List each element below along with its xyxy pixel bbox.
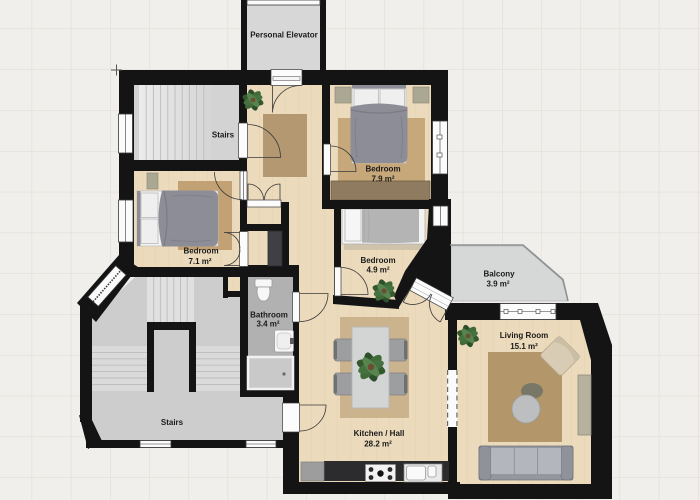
svg-text:3.9 m²: 3.9 m²: [486, 280, 509, 289]
svg-text:Bedroom: Bedroom: [183, 247, 218, 256]
svg-text:Personal Elevator: Personal Elevator: [250, 31, 318, 40]
svg-text:7.9 m²: 7.9 m²: [371, 175, 394, 184]
svg-text:7.1 m²: 7.1 m²: [188, 257, 211, 266]
svg-text:4.9 m²: 4.9 m²: [366, 266, 389, 275]
svg-text:Kitchen / Hall: Kitchen / Hall: [354, 429, 405, 438]
svg-text:Bedroom: Bedroom: [360, 256, 395, 265]
svg-text:28.2 m²: 28.2 m²: [364, 440, 392, 449]
svg-text:Living Room: Living Room: [500, 331, 548, 340]
svg-text:Bathroom: Bathroom: [250, 311, 288, 320]
svg-text:Balcony: Balcony: [483, 270, 515, 279]
svg-text:Bedroom: Bedroom: [365, 165, 400, 174]
svg-text:Stairs: Stairs: [212, 131, 235, 140]
svg-text:Stairs: Stairs: [161, 418, 184, 427]
svg-text:3.4 m²: 3.4 m²: [256, 320, 279, 329]
svg-text:15.1 m²: 15.1 m²: [510, 342, 538, 351]
